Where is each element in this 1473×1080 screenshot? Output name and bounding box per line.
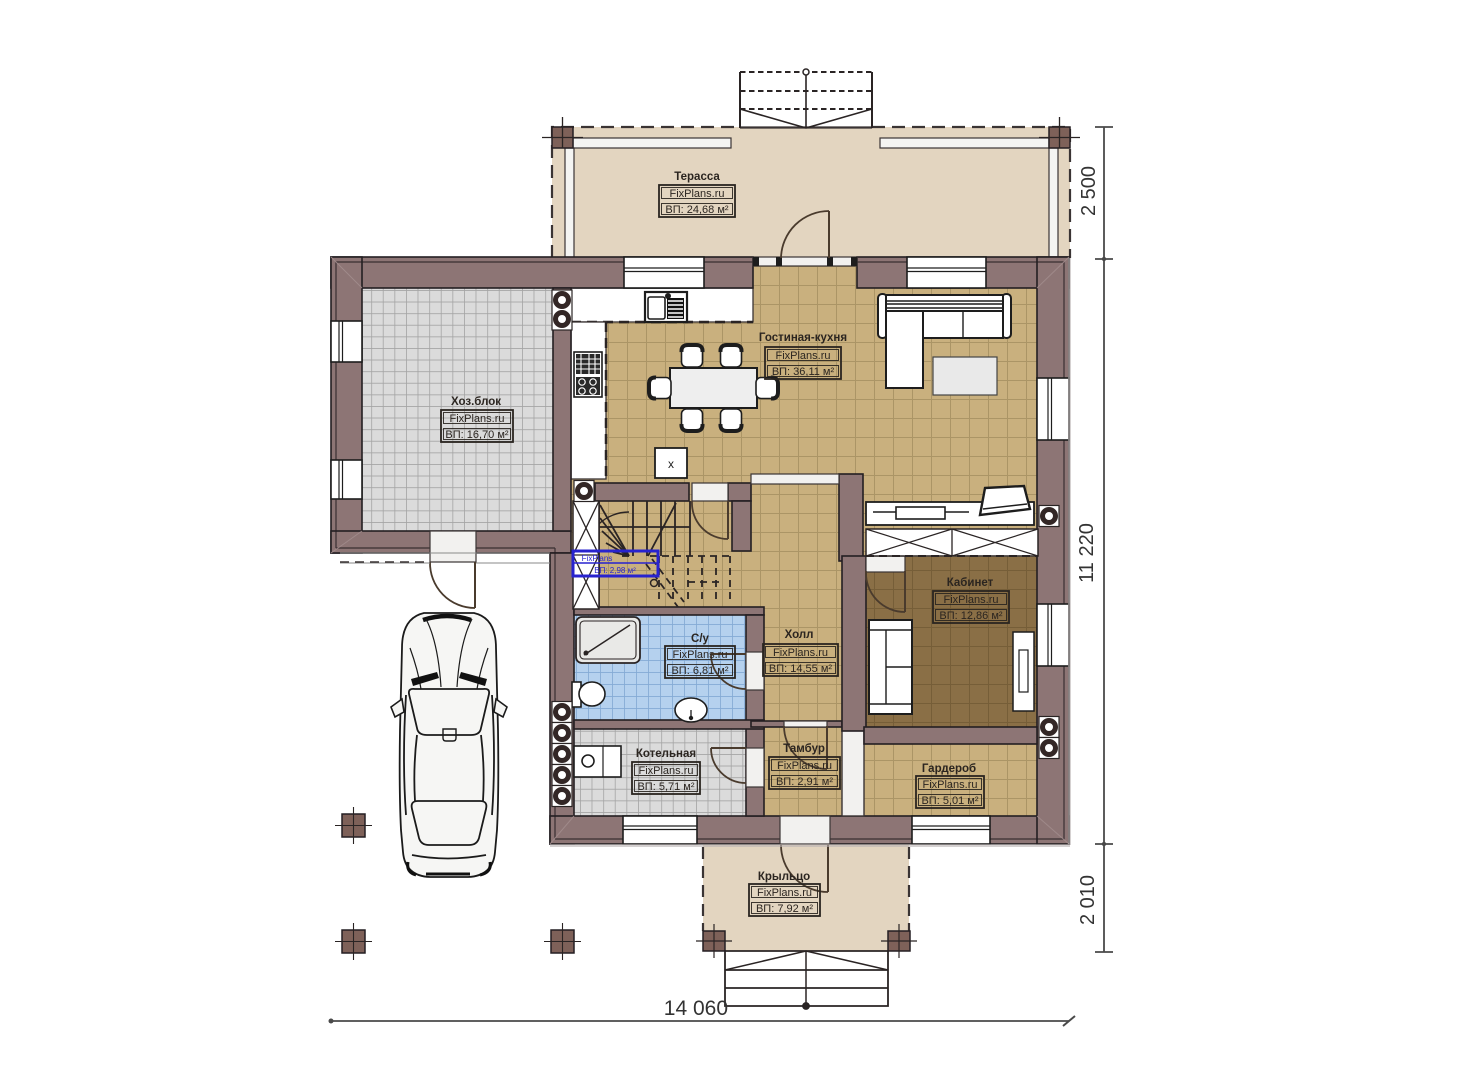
svg-text:Крыльцо: Крыльцо	[758, 871, 810, 883]
svg-text:ВП: 36,11 м²: ВП: 36,11 м²	[772, 366, 835, 378]
svg-text:FixPlans.ru: FixPlans.ru	[669, 188, 724, 200]
svg-text:2 500: 2 500	[1078, 166, 1100, 216]
svg-text:x: x	[668, 457, 674, 471]
svg-text:Гостиная-кухня: Гостиная-кухня	[759, 332, 847, 344]
svg-text:С/у: С/у	[691, 633, 710, 645]
svg-text:ВП: 5,71 м²: ВП: 5,71 м²	[637, 781, 694, 793]
svg-text:FixPlans.ru: FixPlans.ru	[757, 887, 812, 899]
svg-text:FixPlans.ru: FixPlans.ru	[672, 649, 727, 661]
svg-text:Гардероб: Гардероб	[922, 763, 976, 775]
svg-text:Холл: Холл	[785, 629, 814, 641]
svg-text:FixPlans.ru: FixPlans.ru	[773, 647, 828, 659]
svg-text:ВП: 14,55 м²: ВП: 14,55 м²	[769, 663, 833, 675]
svg-text:FixPlans.ru: FixPlans.ru	[775, 350, 830, 362]
svg-text:Кабинет: Кабинет	[947, 577, 994, 589]
svg-text:ВП: 16,70 м²: ВП: 16,70 м²	[445, 429, 509, 441]
svg-text:ВП: 5,01 м²: ВП: 5,01 м²	[921, 795, 978, 807]
svg-text:ВП: 2,91 м²: ВП: 2,91 м²	[776, 776, 833, 788]
svg-text:ВП: 12,86 м²: ВП: 12,86 м²	[939, 610, 1003, 622]
svg-text:FixPlans.ru: FixPlans.ru	[777, 760, 832, 772]
svg-text:Терасса: Терасса	[674, 171, 720, 183]
svg-text:Тамбур: Тамбур	[783, 743, 825, 755]
svg-text:ВП: 6,81 м²: ВП: 6,81 м²	[671, 665, 728, 677]
svg-text:Котельная: Котельная	[636, 748, 696, 760]
svg-text:FixPlans.ru: FixPlans.ru	[943, 594, 998, 606]
svg-text:FixPlans.ru: FixPlans.ru	[638, 765, 693, 777]
svg-text:ВП: 7,92 м²: ВП: 7,92 м²	[756, 903, 813, 915]
svg-text:11 220: 11 220	[1076, 523, 1098, 583]
svg-text:ВП: 24,68 м²: ВП: 24,68 м²	[665, 204, 729, 216]
svg-text:FixPlans.ru: FixPlans.ru	[449, 413, 504, 425]
svg-text:FixPlans: FixPlans	[582, 554, 613, 563]
svg-text:14 060: 14 060	[664, 997, 728, 1020]
svg-text:ВП: 2,98 м²: ВП: 2,98 м²	[594, 566, 636, 575]
svg-text:2 010: 2 010	[1077, 875, 1099, 925]
svg-text:FixPlans.ru: FixPlans.ru	[922, 779, 977, 791]
svg-text:Хоз.блок: Хоз.блок	[451, 396, 501, 408]
